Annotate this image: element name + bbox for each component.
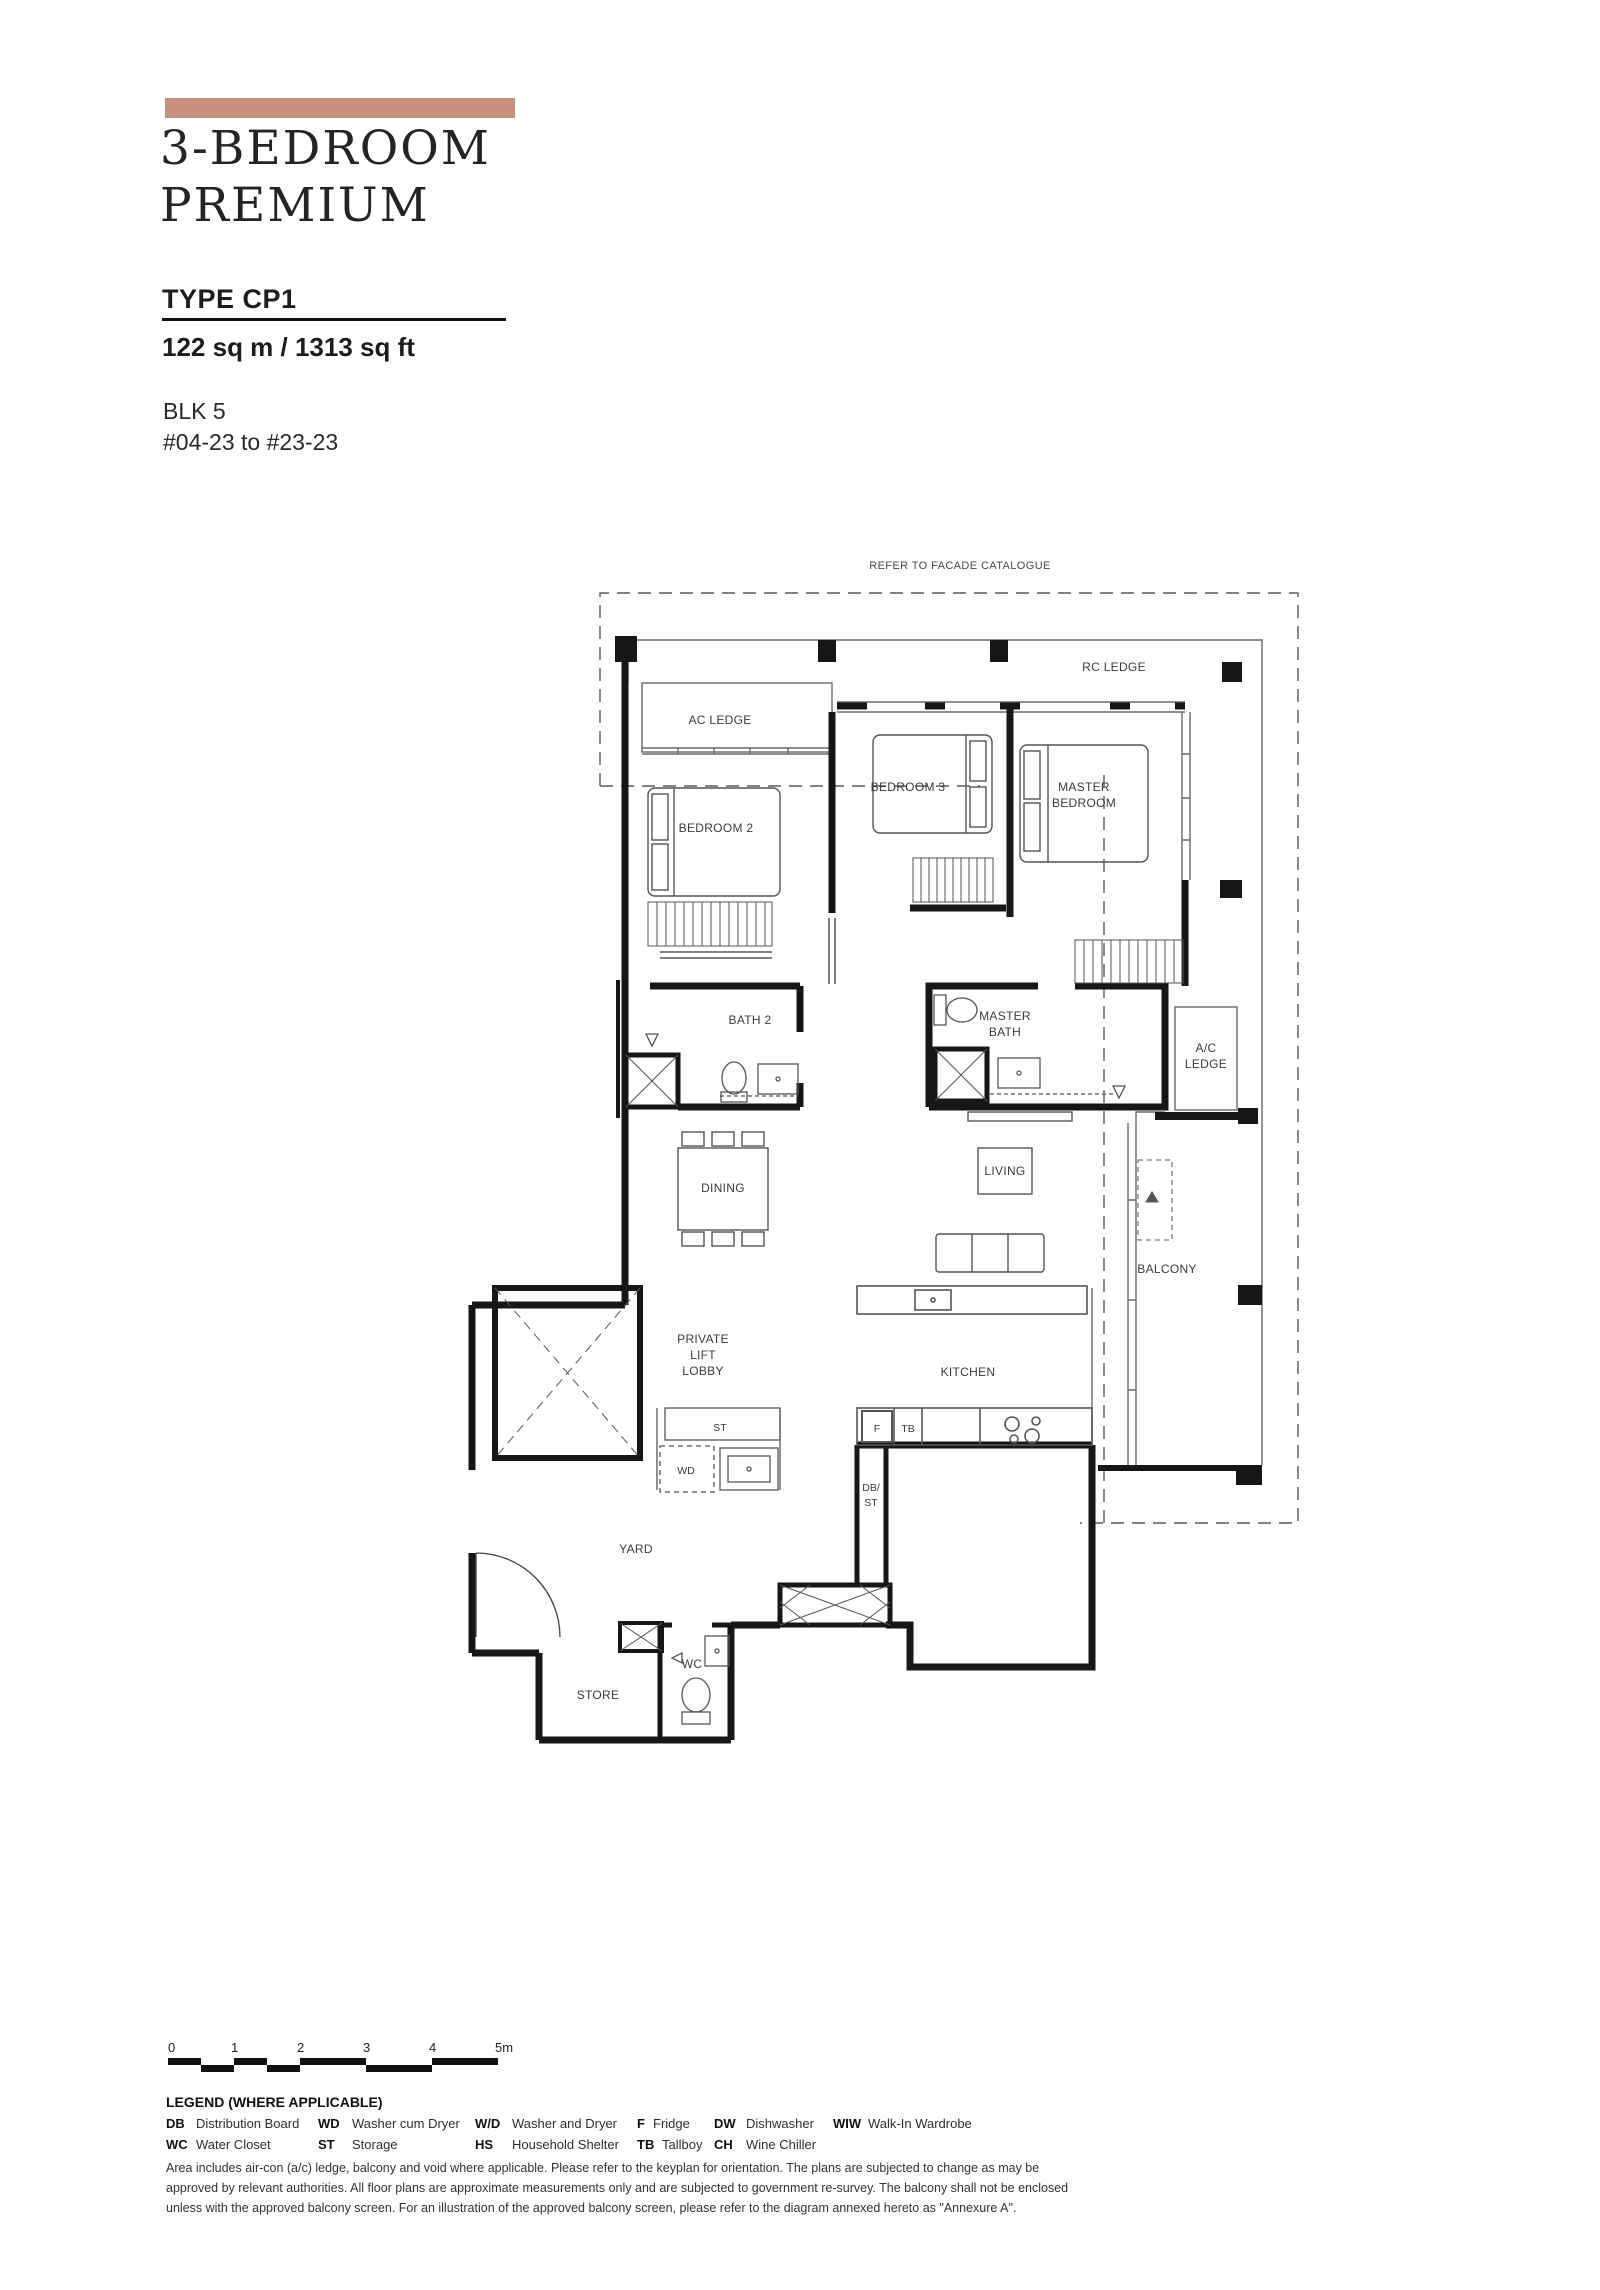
balcony-door xyxy=(1138,1160,1172,1240)
floor-plan-drawing: REFER TO FACADE CATALOGUE xyxy=(420,540,1320,1790)
legend-desc: Fridge xyxy=(653,2116,690,2131)
legend-abbr: WD xyxy=(318,2116,340,2131)
scale-tick-4: 4 xyxy=(429,2040,436,2055)
svg-text:LIFT: LIFT xyxy=(690,1348,716,1362)
wc-fittings xyxy=(620,1623,729,1724)
room-label-rc-ledge: RC LEDGE xyxy=(1082,660,1146,674)
unit-type-label: TYPE CP1 xyxy=(162,284,297,315)
floor-plan: REFER TO FACADE CATALOGUE xyxy=(420,540,1320,1790)
title-line-2: PREMIUM xyxy=(160,177,491,234)
scale-tick-3: 3 xyxy=(363,2040,370,2055)
legend-desc: Tallboy xyxy=(662,2137,702,2152)
room-label-balcony: BALCONY xyxy=(1137,1262,1196,1276)
legend-abbr: WIW xyxy=(833,2116,861,2131)
type-underline xyxy=(162,318,506,321)
label-db-st: DB/ xyxy=(862,1482,880,1494)
household-shelter xyxy=(780,1585,890,1625)
legend-abbr: DB xyxy=(166,2116,185,2131)
scale-tick-2: 2 xyxy=(297,2040,304,2055)
legend-abbr: W/D xyxy=(475,2116,500,2131)
label-wd: WD xyxy=(677,1465,695,1477)
svg-text:LOBBY: LOBBY xyxy=(682,1364,724,1378)
wardrobes xyxy=(648,858,1183,984)
svg-text:LEDGE: LEDGE xyxy=(1185,1057,1227,1071)
room-label-ac-ledge-2: A/C xyxy=(1196,1041,1217,1055)
floorplan-page: 3-BEDROOM PREMIUM TYPE CP1 122 sq m / 13… xyxy=(0,0,1600,2290)
room-label-bath-2: BATH 2 xyxy=(729,1013,772,1027)
legend-desc: Dishwasher xyxy=(746,2116,814,2131)
room-label-master-bedroom: MASTER xyxy=(1058,780,1110,794)
label-f: F xyxy=(874,1423,880,1435)
legend-abbr: TB xyxy=(637,2137,654,2152)
facade-note: REFER TO FACADE CATALOGUE xyxy=(869,560,1051,572)
scale-tick-1: 1 xyxy=(231,2040,238,2055)
legend-abbr: CH xyxy=(714,2137,733,2152)
legend-abbr: ST xyxy=(318,2137,335,2152)
room-label-private-lift-lobby: PRIVATE xyxy=(677,1332,729,1346)
legend-desc: Walk-In Wardrobe xyxy=(868,2116,972,2131)
legend-desc: Storage xyxy=(352,2137,398,2152)
svg-text:ST: ST xyxy=(864,1497,878,1509)
svg-text:BATH: BATH xyxy=(989,1025,1021,1039)
unit-range-label: #04-23 to #23-23 xyxy=(163,429,338,456)
legend-desc: Washer and Dryer xyxy=(512,2116,617,2131)
svg-text:BEDROOM: BEDROOM xyxy=(1052,796,1116,810)
walls xyxy=(472,648,1262,1740)
disclaimer-line-1: Area includes air-con (a/c) ledge, balco… xyxy=(166,2158,1039,2178)
living-furniture xyxy=(936,1112,1072,1272)
room-label-yard: YARD xyxy=(619,1542,653,1556)
room-label-bedroom-3: BEDROOM 3 xyxy=(871,780,946,794)
legend-desc: Household Shelter xyxy=(512,2137,619,2152)
room-label-kitchen: KITCHEN xyxy=(941,1365,996,1379)
scale-tick-0: 0 xyxy=(168,2040,175,2055)
disclaimer-line-3: unless with the approved balcony screen.… xyxy=(166,2198,1016,2218)
legend-desc: Water Closet xyxy=(196,2137,271,2152)
legend-abbr: WC xyxy=(166,2137,188,2152)
legend-abbr: F xyxy=(637,2116,645,2131)
scale-bar: 0 1 2 3 4 5m xyxy=(160,2036,580,2080)
block-label: BLK 5 xyxy=(163,398,226,425)
accent-bar xyxy=(165,98,515,118)
room-label-dining: DINING xyxy=(701,1181,745,1195)
area-label: 122 sq m / 1313 sq ft xyxy=(162,332,415,363)
legend-abbr: HS xyxy=(475,2137,493,2152)
room-label-ac-ledge: AC LEDGE xyxy=(688,713,751,727)
room-label-store: STORE xyxy=(577,1688,620,1702)
scale-bar-segments xyxy=(168,2058,498,2072)
label-st: ST xyxy=(713,1422,727,1434)
storage-wd xyxy=(657,1408,780,1492)
bath2-fittings xyxy=(626,1034,798,1107)
entry-door-icon xyxy=(476,1553,560,1637)
bedroom2-bed-icon xyxy=(648,788,780,896)
label-tb: TB xyxy=(901,1423,914,1435)
room-label-wc: WC xyxy=(682,1657,703,1671)
room-label-living: LIVING xyxy=(984,1164,1025,1178)
legend-desc: Distribution Board xyxy=(196,2116,299,2131)
title-line-1: 3-BEDROOM xyxy=(160,120,491,177)
private-lift xyxy=(495,1288,640,1458)
disclaimer-line-2: approved by relevant authorities. All fl… xyxy=(166,2178,1068,2198)
room-label-bedroom-2: BEDROOM 2 xyxy=(679,821,754,835)
page-title: 3-BEDROOM PREMIUM xyxy=(160,120,491,234)
legend-abbr: DW xyxy=(714,2116,736,2131)
room-label-master-bath: MASTER xyxy=(979,1009,1031,1023)
scale-tick-5: 5m xyxy=(495,2040,513,2055)
legend-desc: Washer cum Dryer xyxy=(352,2116,460,2131)
legend-title: LEGEND (WHERE APPLICABLE) xyxy=(166,2094,382,2110)
legend-desc: Wine Chiller xyxy=(746,2137,816,2152)
